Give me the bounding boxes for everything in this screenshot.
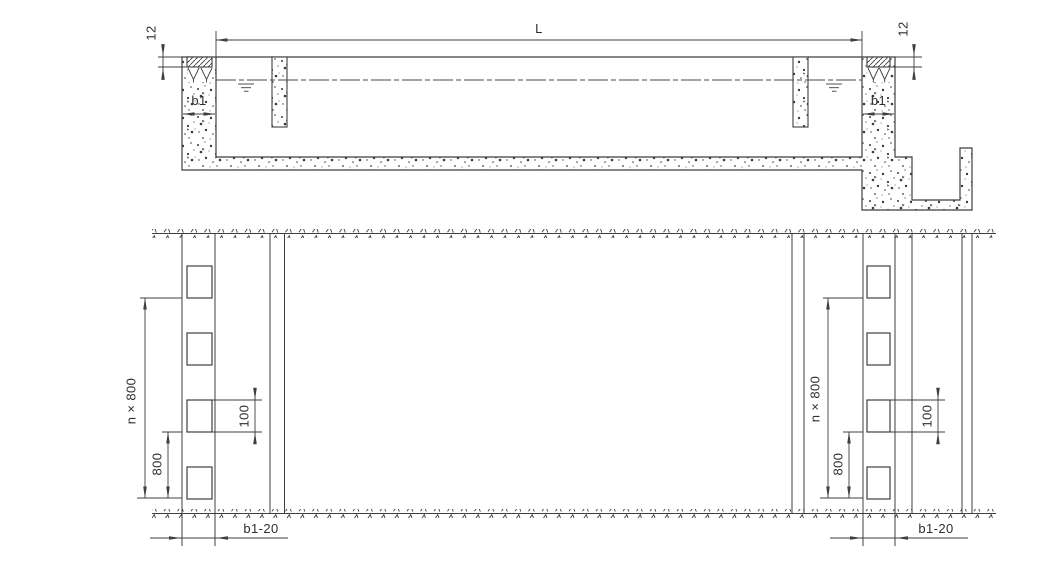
wall-openings-right	[867, 266, 890, 499]
technical-drawing: L 12 12 b1 b1	[0, 0, 1043, 567]
dim-label-opening-right: 100	[920, 405, 935, 428]
dim-label-wall-plan-right: b1-20	[918, 521, 953, 536]
dim-label-length: L	[535, 21, 543, 36]
dim-label-opening-left: 100	[237, 405, 252, 428]
wall-openings-left	[187, 266, 212, 499]
dimension-opening-left: 100	[212, 388, 262, 444]
dimension-coping-left: 12	[144, 25, 164, 80]
dimension-wall-plan-left: b1-20	[150, 521, 288, 538]
dimension-length: L	[216, 21, 862, 57]
break-line-bottom	[152, 509, 996, 518]
cross-section-view: L 12 12 b1 b1	[144, 21, 973, 210]
dim-label-coping-right: 12	[896, 21, 911, 36]
dimension-spacing-right: 800	[831, 432, 864, 498]
left-coping-block	[187, 57, 212, 67]
dim-label-wall-left: b1	[191, 93, 206, 108]
dimension-wall-plan-right: b1-20	[830, 521, 968, 538]
water-level-symbol-right	[826, 84, 842, 91]
dimension-coping-right: 12	[896, 21, 915, 80]
right-baffle-wall	[793, 57, 808, 127]
drawing-canvas: L 12 12 b1 b1	[0, 0, 1043, 567]
dim-label-wall-plan-left: b1-20	[243, 521, 278, 536]
dim-label-wall-right: b1	[871, 93, 886, 108]
dim-label-total-spacing-right: n × 800	[808, 376, 823, 423]
break-line-top	[152, 229, 996, 238]
dimension-spacing-left: 800	[150, 432, 183, 498]
dim-label-spacing-left: 800	[150, 453, 165, 476]
dim-label-coping-left: 12	[144, 25, 159, 40]
dim-label-spacing-right: 800	[831, 453, 846, 476]
plan-view: n × 800 800 100 b1-20	[124, 229, 997, 546]
left-baffle-wall	[272, 57, 287, 127]
water-level-symbol-left	[238, 84, 254, 91]
right-coping-block	[867, 57, 890, 67]
dimension-opening-right: 100	[890, 388, 945, 444]
dim-label-total-spacing-left: n × 800	[124, 378, 139, 425]
